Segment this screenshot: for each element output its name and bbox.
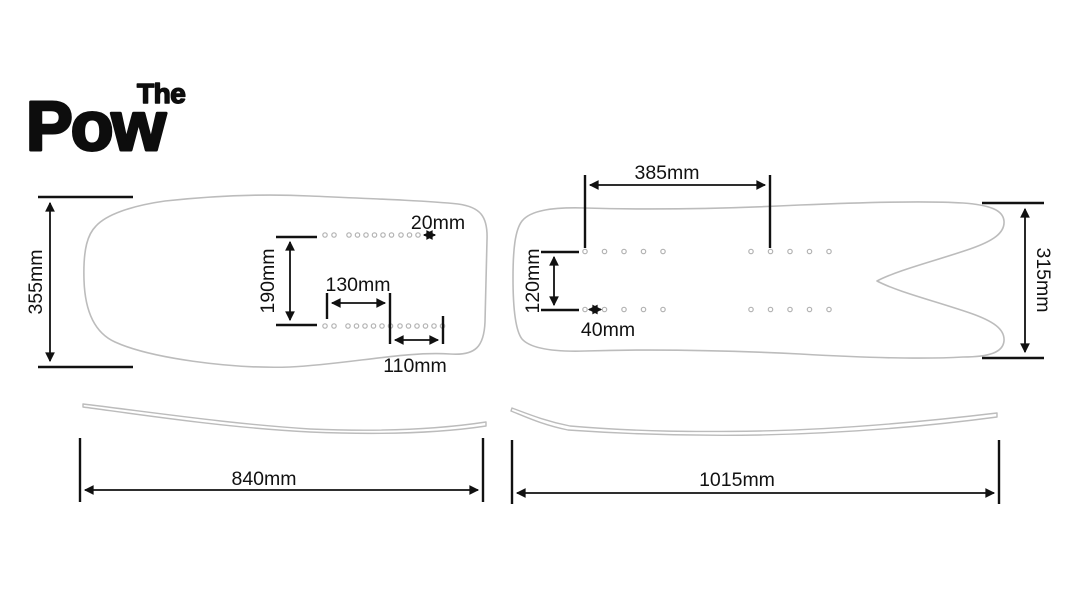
dim-label-40: 40mm xyxy=(581,319,635,341)
dim-insert-offset-385: 385mm xyxy=(585,162,770,248)
left-board-top-view: 355mm 20mm 190mm 130mm 110mm xyxy=(25,195,487,377)
dim-label-840: 840mm xyxy=(231,468,296,490)
dim-label-385: 385mm xyxy=(634,162,699,184)
logo-pow: Pow xyxy=(26,87,166,165)
left-board-profile-outline xyxy=(83,404,486,433)
right-board-top-view: 385mm 120mm 40mm 315mm xyxy=(513,162,1054,358)
dim-label-355: 355mm xyxy=(25,249,47,314)
dim-label-120: 120mm xyxy=(522,248,544,313)
logo: The Pow xyxy=(26,78,185,165)
dim-tail-width-315: 315mm xyxy=(982,203,1054,358)
spec-sheet-drawing: The Pow 355mm 20mm xyxy=(0,0,1085,600)
right-board-insert-holes xyxy=(583,249,831,311)
right-board-side-profile: 1015mm xyxy=(511,408,999,504)
dim-board-length-840: 840mm xyxy=(80,438,483,502)
spec-sheet: The Pow 355mm 20mm xyxy=(0,0,1085,600)
dim-board-width-355: 355mm xyxy=(25,197,133,367)
left-board-side-profile: 840mm xyxy=(80,404,486,502)
dim-label-110: 110mm xyxy=(383,355,447,377)
dim-label-315: 315mm xyxy=(1032,247,1054,312)
dim-hole-spacing-20: 20mm xyxy=(411,212,465,235)
dim-front-insert-span-130: 130mm xyxy=(325,274,390,344)
dim-board-length-1015: 1015mm xyxy=(512,440,999,504)
dim-label-130: 130mm xyxy=(325,274,390,296)
right-board-profile-outline xyxy=(511,408,997,435)
dim-insert-row-gap-120: 120mm xyxy=(522,248,579,313)
dim-hole-spacing-40: 40mm xyxy=(581,310,635,342)
dim-label-1015: 1015mm xyxy=(699,469,775,491)
dim-label-190: 190mm xyxy=(257,248,279,313)
dim-insert-row-gap-190: 190mm xyxy=(257,237,317,325)
dim-label-20: 20mm xyxy=(411,212,465,234)
